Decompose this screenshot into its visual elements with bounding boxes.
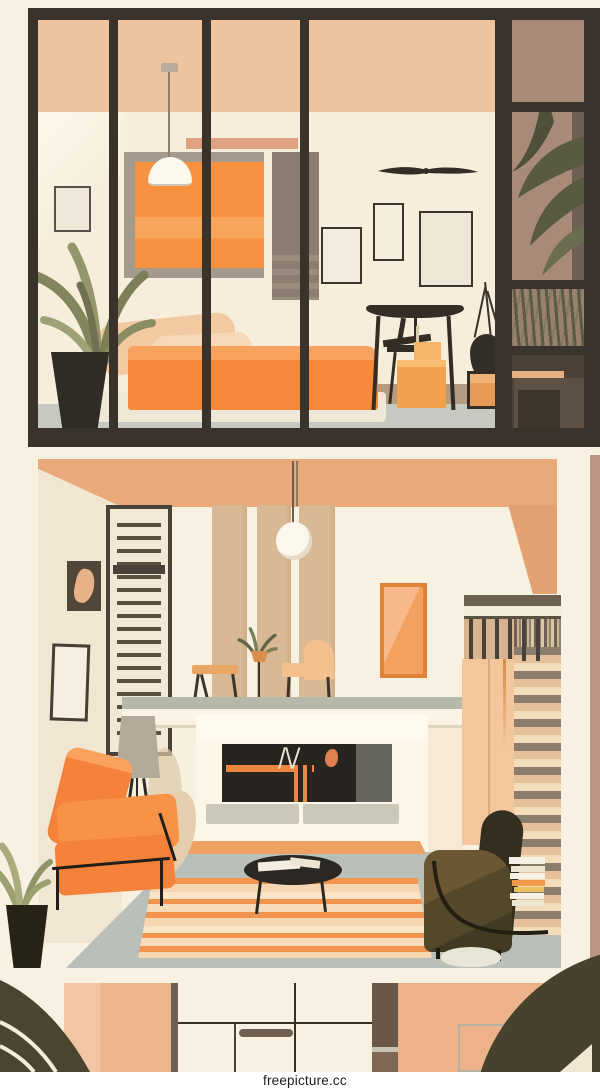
big-leaves-icon — [510, 106, 586, 286]
bedroom-ceiling — [37, 20, 497, 112]
lr-plant-icon — [0, 818, 62, 918]
abstract-art-frame — [67, 561, 101, 611]
side-window-pane-bottom — [510, 352, 586, 430]
side-window-pane-top — [510, 18, 586, 110]
book-spine-7 — [512, 900, 544, 906]
globe-pendant-shade — [276, 522, 312, 560]
ceiling-fan-icon — [378, 163, 478, 181]
book-spine-5 — [514, 887, 544, 892]
wardrobe-drawers — [272, 255, 319, 300]
foliage-arc-icon — [0, 978, 100, 1072]
stair-cabinet-streak — [503, 659, 506, 751]
partition-mullion-2 — [202, 18, 211, 430]
baluster-4 — [508, 619, 512, 661]
pendant-canopy — [161, 63, 178, 72]
media-orange-stripes — [294, 765, 312, 802]
ceiling-fan — [378, 163, 478, 181]
lr-plant-leaves — [0, 818, 62, 918]
partition-mullion-3 — [300, 18, 309, 430]
side-window-divider-1 — [508, 102, 588, 112]
side-window-pane-leaves — [510, 106, 586, 286]
book-spine-1 — [509, 857, 545, 864]
orange-mirror — [380, 583, 427, 678]
side-window-divider-2 — [508, 280, 588, 289]
partition-mullion-1 — [109, 18, 118, 430]
mezz-chair-seat — [282, 663, 332, 677]
mezz-stool-top — [192, 665, 238, 674]
pendant-cord — [168, 72, 170, 160]
loft-shelf-board-dark — [464, 595, 561, 606]
art-peach-blob — [72, 567, 98, 604]
bench-lit-top — [512, 371, 564, 378]
hearth-panel-left — [206, 804, 299, 824]
wall-frame-b — [373, 203, 404, 261]
partition-left-bar — [28, 8, 38, 447]
book-spine-6 — [510, 893, 544, 899]
illustration-canvas: freepicture.cc — [0, 0, 600, 1091]
storage-box-large — [397, 360, 446, 408]
bench-inner — [518, 390, 560, 428]
hearth-edge — [178, 841, 426, 854]
kitchen-vline-main — [294, 983, 296, 1072]
side-window-divider-3 — [508, 346, 588, 355]
lr-ceiling — [38, 459, 557, 507]
lounge-leg-r — [160, 858, 163, 906]
baluster-1 — [469, 619, 473, 661]
drawer-handle — [239, 1029, 293, 1037]
louver-mid-rail — [113, 565, 165, 574]
loft-shelf-board-light — [464, 606, 561, 616]
hearth-panel-right — [303, 804, 399, 824]
lr-plant-pot — [6, 905, 48, 968]
blank-art-frame — [50, 643, 91, 721]
globe-pendant-cord — [292, 461, 294, 525]
box-lid-face — [397, 360, 446, 367]
wardrobe-panel — [272, 152, 319, 300]
kitchen-counter-line — [178, 1022, 375, 1024]
foliage-arc-left — [0, 978, 100, 1072]
partition-thick-post — [495, 8, 512, 447]
side-window-right-bar — [584, 8, 600, 447]
wall-frame-c — [419, 211, 473, 287]
baluster-2 — [482, 619, 486, 661]
plant-stand-leg — [258, 662, 260, 698]
mantel-top-face — [196, 714, 428, 742]
kitchen-vline-small — [234, 1024, 236, 1072]
lr-right-mauve-wall — [590, 455, 600, 967]
watermark-text: freepicture.cc — [263, 1073, 347, 1088]
lr-ceiling-seam — [296, 461, 298, 506]
partition-bottom-bar — [28, 428, 600, 447]
book-spine-3 — [510, 873, 545, 879]
stool-top-face — [470, 374, 498, 383]
baluster-5 — [522, 619, 526, 661]
white-pouf — [441, 947, 501, 967]
book-spine-4 — [512, 880, 545, 886]
wall-frame-a — [321, 227, 362, 284]
kitchen-cabinet-edge — [171, 983, 178, 1072]
side-window-pane-shrubs — [510, 286, 586, 352]
striped-rug — [138, 878, 432, 958]
mirror-glass — [384, 587, 423, 674]
book-spine-2 — [511, 866, 545, 872]
armchair-leg-l — [436, 948, 440, 959]
recess-glass-panel — [356, 744, 392, 802]
baluster-3 — [495, 619, 499, 661]
shrub-stripes — [510, 286, 586, 352]
baluster-6 — [536, 619, 540, 661]
